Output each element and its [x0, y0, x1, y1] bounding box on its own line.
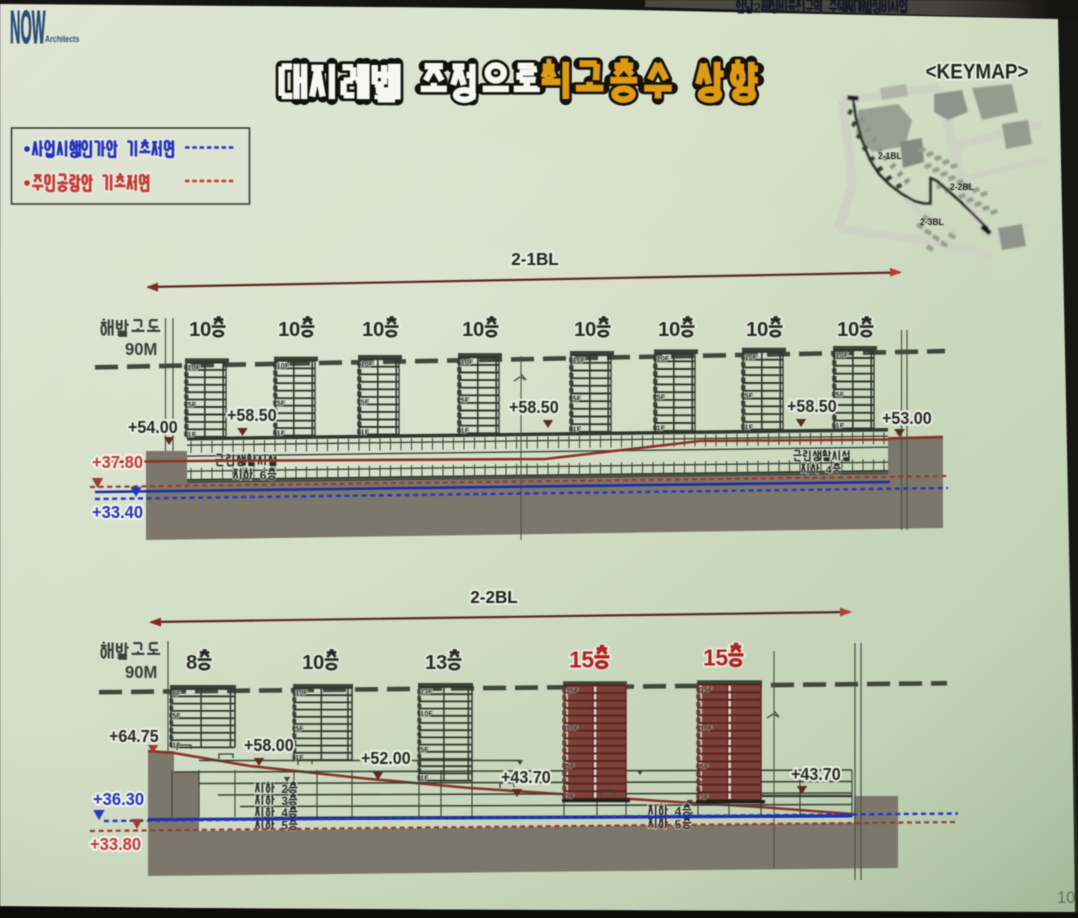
- svg-text:1: 1: [703, 644, 716, 670]
- svg-text:90M: 90M: [125, 340, 157, 359]
- svg-text:+43.70: +43.70: [501, 767, 551, 787]
- svg-text:F: F: [844, 351, 849, 360]
- svg-text:+58.50: +58.50: [227, 405, 277, 425]
- svg-text:F: F: [708, 686, 713, 694]
- svg-text:1: 1: [658, 319, 669, 341]
- svg-text:F: F: [424, 775, 429, 783]
- svg-text:1: 1: [837, 319, 848, 341]
- svg-text:3: 3: [436, 652, 447, 674]
- svg-text:F: F: [281, 399, 286, 408]
- svg-text:F: F: [753, 352, 758, 361]
- svg-text:F: F: [192, 400, 197, 409]
- svg-text:1: 1: [425, 652, 436, 674]
- svg-text:F: F: [465, 426, 470, 435]
- svg-text:2-2BL: 2-2BL: [470, 587, 518, 608]
- svg-text:F: F: [570, 793, 575, 801]
- svg-text:F: F: [661, 393, 666, 402]
- svg-text:+58.00: +58.00: [244, 735, 294, 755]
- svg-text:F: F: [840, 390, 845, 399]
- svg-text:1: 1: [569, 646, 582, 672]
- svg-text:90M: 90M: [125, 663, 157, 682]
- svg-text:0: 0: [289, 319, 300, 341]
- svg-text:+33.40: +33.40: [92, 501, 143, 522]
- svg-text:F: F: [574, 687, 579, 695]
- svg-text:F: F: [581, 356, 586, 365]
- svg-text:F: F: [577, 425, 582, 434]
- svg-text:F: F: [465, 396, 470, 405]
- svg-text:+37.80: +37.80: [92, 451, 143, 472]
- svg-text:F: F: [281, 429, 286, 438]
- svg-text:1: 1: [746, 319, 757, 341]
- svg-text:8: 8: [186, 652, 197, 674]
- svg-text:F: F: [176, 690, 181, 698]
- svg-text:F: F: [424, 746, 429, 754]
- svg-text:0: 0: [848, 319, 859, 341]
- svg-text:+36.30: +36.30: [93, 788, 144, 809]
- svg-text:1: 1: [362, 319, 373, 341]
- svg-text:F: F: [574, 725, 579, 733]
- svg-text:F: F: [749, 422, 754, 431]
- svg-text:F: F: [285, 361, 290, 370]
- svg-text:10: 10: [1057, 889, 1075, 907]
- svg-text:F: F: [749, 391, 754, 400]
- svg-text:F: F: [299, 754, 304, 762]
- svg-text:+54.00: +54.00: [128, 417, 178, 437]
- svg-text:+53.00: +53.00: [882, 408, 932, 428]
- svg-text:0: 0: [200, 319, 211, 341]
- svg-text:F: F: [840, 421, 845, 430]
- svg-text:F: F: [708, 724, 713, 732]
- svg-text:1: 1: [462, 319, 473, 341]
- svg-text:F: F: [196, 363, 201, 372]
- svg-text:F: F: [365, 427, 370, 436]
- svg-text:F: F: [303, 689, 308, 697]
- svg-text:F: F: [176, 712, 181, 720]
- svg-text:+58.50: +58.50: [509, 397, 559, 417]
- svg-text:2-2BL: 2-2BL: [950, 182, 974, 192]
- svg-text:1: 1: [189, 319, 200, 341]
- svg-text:Architects: Architects: [45, 34, 80, 44]
- svg-text:5: 5: [715, 644, 728, 670]
- svg-text:NOW: NOW: [10, 3, 46, 54]
- svg-text:F: F: [192, 430, 197, 439]
- svg-text:2-1BL: 2-1BL: [511, 249, 559, 270]
- svg-text:1: 1: [278, 319, 289, 341]
- svg-text:F: F: [469, 358, 474, 367]
- svg-text:0: 0: [585, 319, 596, 341]
- svg-text:F: F: [369, 360, 374, 369]
- svg-text:2: 2: [754, 0, 762, 15]
- svg-text:<KEYMAP>: <KEYMAP>: [925, 60, 1028, 83]
- svg-text:F: F: [365, 397, 370, 406]
- svg-text:1: 1: [574, 319, 585, 341]
- svg-text:0: 0: [373, 319, 384, 341]
- svg-text:+33.80: +33.80: [90, 833, 141, 854]
- svg-text:+64.75: +64.75: [109, 726, 159, 746]
- svg-text:0: 0: [757, 319, 768, 341]
- svg-text:1: 1: [302, 652, 313, 674]
- svg-text:F: F: [661, 424, 666, 433]
- svg-text:0: 0: [669, 319, 680, 341]
- svg-text:+43.70: +43.70: [791, 764, 841, 784]
- svg-text:0: 0: [473, 319, 484, 341]
- svg-text:4: 4: [826, 464, 833, 476]
- svg-text:F: F: [428, 688, 433, 696]
- svg-text:F: F: [665, 354, 670, 363]
- svg-text:6: 6: [260, 468, 267, 482]
- svg-text:F: F: [299, 725, 304, 733]
- svg-text:5: 5: [581, 646, 594, 672]
- svg-text:5: 5: [281, 819, 288, 832]
- svg-text:F: F: [577, 394, 582, 403]
- svg-text:F: F: [704, 794, 709, 802]
- svg-text:+52.00: +52.00: [361, 748, 411, 768]
- svg-text:+58.50: +58.50: [787, 396, 837, 416]
- svg-text:F: F: [428, 710, 433, 718]
- svg-text:0: 0: [313, 652, 324, 674]
- svg-text:2-3BL: 2-3BL: [920, 217, 944, 227]
- svg-text:F: F: [570, 762, 575, 770]
- svg-text:F: F: [704, 763, 709, 771]
- svg-text:2-1BL: 2-1BL: [878, 151, 902, 161]
